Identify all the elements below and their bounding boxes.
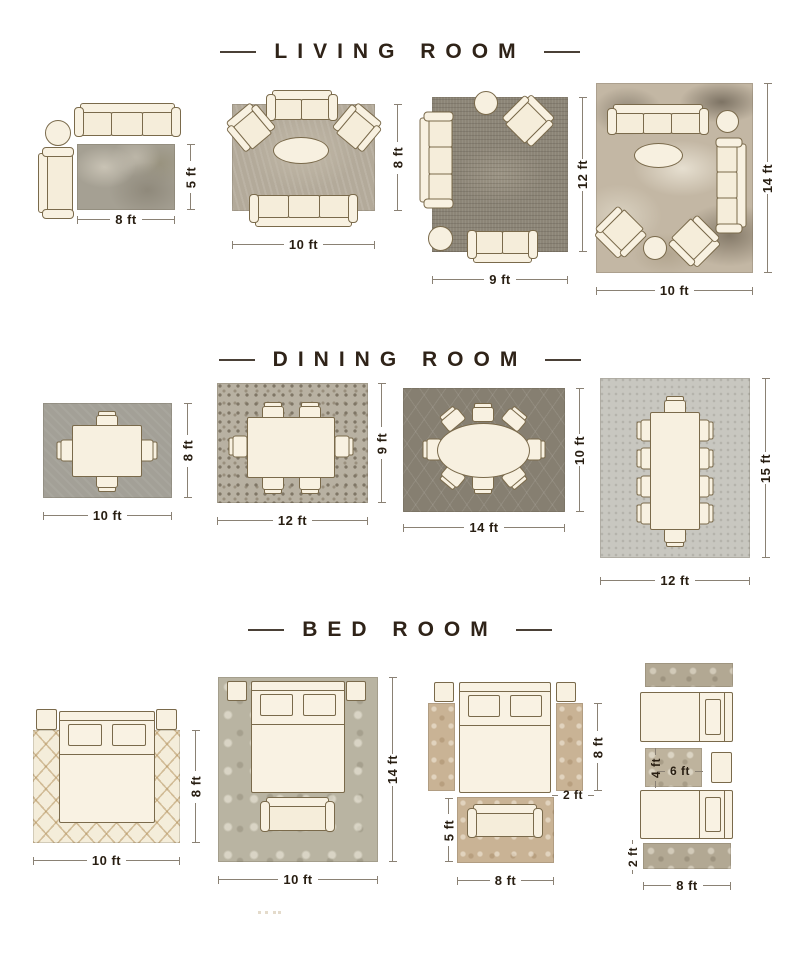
- sofa-3seat: [716, 138, 747, 234]
- dim-line: [323, 244, 374, 245]
- title-dash-left: [220, 51, 256, 53]
- dim-label: 8 ft: [490, 873, 522, 888]
- width-dimension: 14 ft: [403, 520, 565, 535]
- runner-width-dimension: 8 ft: [643, 878, 731, 893]
- nightstand: [434, 682, 454, 702]
- pillow: [705, 797, 721, 832]
- nightstand: [36, 709, 57, 730]
- dim-label: 5 ft: [183, 166, 198, 188]
- dim-line: [381, 384, 382, 427]
- cushion: [475, 231, 504, 254]
- dim-line: [597, 290, 655, 291]
- seats: [274, 99, 330, 120]
- width-dimension: 12 ft: [217, 513, 368, 528]
- seats: [717, 146, 738, 226]
- dim-line: [644, 885, 671, 886]
- arm: [325, 801, 335, 832]
- seats: [268, 806, 327, 831]
- dim-line: [44, 515, 88, 516]
- watermark-mark: [278, 911, 281, 914]
- height-dimension: 14 ft: [760, 83, 775, 273]
- foot-rug-width-dimension: 8 ft: [457, 873, 554, 888]
- dim-label: 2 ft: [626, 847, 640, 867]
- dim-label: 10 ft: [655, 283, 694, 298]
- dim-label: 8 ft: [110, 212, 142, 227]
- dim-line: [195, 731, 196, 771]
- dim-label: 8 ft: [390, 147, 405, 169]
- blanket-line: [699, 693, 700, 741]
- dim-line: [190, 145, 191, 161]
- dim-line: [397, 174, 398, 211]
- section-title-dining-room: DINING ROOM: [0, 348, 800, 372]
- blanket-line: [252, 724, 344, 725]
- title-dash-right: [544, 51, 580, 53]
- dim-label: 10 ft: [88, 508, 127, 523]
- pillow: [510, 695, 542, 717]
- cushion: [429, 147, 453, 175]
- runner-width-dimension: 2 ft: [552, 788, 594, 802]
- runner-height-dimension: 2 ft: [625, 840, 640, 874]
- twin-bed: [640, 790, 733, 839]
- dim-label: 10 ft: [572, 435, 587, 464]
- bedroom-layout-1: 10 ft 8 ft: [25, 675, 210, 870]
- title-dash-right: [516, 629, 552, 631]
- dim-line: [694, 290, 752, 291]
- dim-line: [448, 846, 449, 861]
- dim-line: [601, 580, 655, 581]
- watermark-mark: [258, 911, 261, 914]
- dim-line: [516, 279, 567, 280]
- dim-label: 12 ft: [575, 160, 590, 189]
- cushion: [267, 806, 327, 831]
- dim-tick: [553, 877, 554, 885]
- arm: [171, 107, 181, 137]
- rug-size-guide-infographic: LIVING ROOM 8 ft 5 ft: [0, 0, 800, 978]
- round-side-table: [716, 110, 739, 133]
- ottoman: [428, 226, 453, 251]
- cushion: [717, 171, 738, 199]
- dim-tick: [762, 557, 770, 558]
- nightstand: [156, 709, 177, 730]
- seats: [475, 231, 530, 254]
- dim-line: [657, 771, 665, 772]
- height-dimension: 8 ft: [180, 403, 195, 498]
- arm: [42, 147, 74, 157]
- arm: [424, 199, 454, 209]
- width-dimension: 12 ft: [600, 573, 750, 588]
- seats: [475, 813, 535, 837]
- dim-line: [703, 885, 730, 886]
- cushion: [319, 195, 351, 218]
- seats: [257, 195, 350, 218]
- dim-line: [142, 219, 174, 220]
- cushion: [717, 198, 738, 226]
- dim-label: 14 ft: [385, 755, 400, 784]
- width-dimension: 10 ft: [218, 872, 378, 887]
- dim-label: 6 ft: [665, 764, 695, 778]
- dim-line: [695, 771, 703, 772]
- cushion: [111, 112, 142, 136]
- dining-table: [247, 417, 335, 478]
- width-dimension: 10 ft: [596, 283, 753, 298]
- arm: [328, 94, 338, 121]
- living-layout-1: 8 ft 5 ft: [20, 85, 210, 245]
- dim-label: 15 ft: [758, 453, 773, 482]
- dim-line: [187, 467, 188, 498]
- height-dimension: 10 ft: [572, 388, 587, 512]
- headboard: [252, 682, 344, 691]
- dim-line: [381, 459, 382, 502]
- dim-line: [767, 84, 768, 162]
- dim-tick: [389, 861, 397, 862]
- chair-seat: [233, 436, 248, 458]
- arm: [533, 808, 543, 838]
- dim-line: [219, 879, 278, 880]
- dining-chair: [472, 403, 494, 422]
- cushion: [273, 99, 302, 120]
- arm: [467, 808, 477, 838]
- sofa-3seat: [420, 112, 454, 209]
- dim-line: [579, 389, 580, 434]
- dim-tick: [377, 876, 378, 884]
- nightstand: [711, 752, 732, 783]
- dim-line: [582, 98, 583, 159]
- headboard: [724, 693, 732, 741]
- cushion: [643, 113, 673, 134]
- bench: [467, 804, 543, 838]
- dim-line: [187, 404, 188, 435]
- section-title-text: BED ROOM: [302, 618, 498, 642]
- bench: [260, 797, 335, 832]
- dim-label: 9 ft: [374, 432, 389, 454]
- dim-line: [458, 880, 490, 881]
- dim-label: 10 ft: [278, 872, 317, 887]
- dim-label: 8 ft: [180, 440, 195, 462]
- dim-line: [765, 379, 766, 452]
- dining-chair: [664, 528, 686, 547]
- dim-label: 5 ft: [441, 819, 456, 841]
- cushion: [257, 195, 289, 218]
- chair-seat: [335, 436, 350, 458]
- dim-line: [597, 763, 598, 790]
- arm: [260, 801, 270, 832]
- height-dimension: 15 ft: [758, 378, 773, 558]
- loveseat: [266, 90, 338, 121]
- dim-tick: [171, 512, 172, 520]
- arm: [249, 194, 259, 223]
- loveseat: [467, 230, 538, 263]
- bed: [251, 681, 345, 793]
- round-side-table: [474, 91, 498, 115]
- runner-height-dimension: 8 ft: [590, 703, 605, 791]
- round-side-table: [45, 120, 71, 146]
- bedroom-layout-2: 10 ft 14 ft: [200, 655, 410, 890]
- title-dash-left: [219, 359, 255, 361]
- height-dimension: 8 ft: [188, 730, 203, 843]
- pillow: [705, 699, 721, 735]
- dim-label: 8 ft: [188, 776, 203, 798]
- dining-layout-2: 12 ft 9 ft: [210, 380, 395, 535]
- center-rug-width-dimension: 6 ft: [657, 764, 703, 778]
- seats: [82, 112, 173, 136]
- dim-tick: [579, 251, 587, 252]
- pillow: [468, 695, 500, 717]
- seats: [429, 120, 453, 201]
- seats: [47, 155, 73, 211]
- living-layout-4: 10 ft 14 ft: [585, 80, 795, 305]
- section-title-living-room: LIVING ROOM: [0, 40, 800, 64]
- dim-line: [318, 879, 377, 880]
- blanket-line: [60, 754, 154, 755]
- living-layout-3: 9 ft 12 ft: [400, 85, 595, 285]
- dining-chair: [335, 436, 354, 458]
- pillow: [112, 724, 146, 746]
- sofa-3seat: [607, 104, 709, 135]
- dining-layout-1: 10 ft 8 ft: [30, 395, 205, 530]
- dim-line: [218, 520, 273, 521]
- dim-line: [190, 193, 191, 209]
- dim-label: 12 ft: [273, 513, 312, 528]
- dim-tick: [564, 524, 565, 532]
- watermark-mark: [273, 911, 276, 914]
- arm: [716, 224, 743, 234]
- width-dimension: 10 ft: [43, 508, 172, 523]
- cushion: [503, 231, 532, 254]
- cushion: [47, 155, 73, 212]
- dim-label: 14 ft: [464, 520, 503, 535]
- dim-line: [765, 484, 766, 557]
- dim-line: [34, 860, 87, 861]
- dim-line: [579, 466, 580, 511]
- dim-tick: [378, 502, 386, 503]
- headboard: [60, 712, 154, 721]
- dining-chair: [229, 436, 248, 458]
- dim-line: [312, 520, 367, 521]
- cushion: [301, 99, 330, 120]
- sofa-3seat: [74, 103, 181, 137]
- headboard: [724, 791, 732, 838]
- height-dimension: 14 ft: [385, 677, 400, 862]
- title-dash-right: [545, 359, 581, 361]
- dining-layout-3: 14 ft 10 ft: [395, 380, 595, 540]
- dim-line: [521, 880, 553, 881]
- seats: [615, 113, 701, 134]
- arm: [699, 108, 709, 135]
- arm: [607, 108, 617, 135]
- runner-rug: [645, 663, 733, 687]
- arm: [528, 230, 538, 259]
- width-dimension: 10 ft: [232, 237, 375, 252]
- pillow: [303, 694, 336, 716]
- blanket-line: [699, 791, 700, 838]
- cushion: [429, 120, 453, 148]
- pillow: [260, 694, 293, 716]
- cushion: [81, 112, 112, 136]
- rug: [77, 144, 175, 210]
- section-title-bed-room: BED ROOM: [0, 618, 800, 642]
- dim-tick: [184, 497, 192, 498]
- dim-line: [392, 678, 393, 754]
- dim-label: 10 ft: [87, 853, 126, 868]
- width-dimension: 8 ft: [77, 212, 175, 227]
- dim-tick: [187, 209, 195, 210]
- dim-line: [655, 781, 656, 788]
- cushion: [717, 145, 738, 173]
- cushion: [474, 813, 535, 837]
- dining-table: [650, 412, 700, 530]
- bed: [459, 682, 551, 793]
- watermark-mark: [265, 911, 268, 914]
- dim-line: [195, 803, 196, 843]
- dining-table: [72, 425, 142, 477]
- height-dimension: 8 ft: [390, 104, 405, 211]
- title-dash-left: [248, 629, 284, 631]
- nightstand: [346, 681, 366, 701]
- dim-tick: [752, 287, 753, 295]
- dim-line: [404, 527, 464, 528]
- arm: [424, 112, 454, 122]
- dim-line: [695, 580, 749, 581]
- dim-line: [433, 279, 484, 280]
- cushion: [671, 113, 701, 134]
- dim-tick: [374, 241, 375, 249]
- dim-label: 10 ft: [284, 237, 323, 252]
- dim-tick: [730, 882, 731, 890]
- sofa-3seat: [249, 194, 358, 227]
- width-dimension: 10 ft: [33, 853, 180, 868]
- dim-tick: [764, 272, 772, 273]
- dim-line: [448, 799, 449, 814]
- dim-tick: [445, 861, 453, 862]
- bed: [59, 711, 155, 823]
- dim-tick: [576, 511, 584, 512]
- section-title-text: DINING ROOM: [273, 348, 528, 372]
- dim-tick: [174, 216, 175, 224]
- dim-line: [126, 860, 179, 861]
- arm: [348, 194, 358, 223]
- runner-rug: [643, 843, 731, 869]
- dim-tick: [179, 857, 180, 865]
- dim-line: [588, 795, 594, 796]
- dim-line: [655, 748, 656, 755]
- dim-label: 2 ft: [558, 788, 588, 802]
- width-dimension: 9 ft: [432, 272, 568, 287]
- dim-line: [233, 244, 284, 245]
- dim-line: [127, 515, 171, 516]
- height-dimension: 5 ft: [183, 144, 198, 210]
- dim-label: 12 ft: [655, 573, 694, 588]
- dining-layout-4: 12 ft 15 ft: [595, 370, 795, 590]
- dim-tick: [567, 276, 568, 284]
- chair-seat: [472, 407, 494, 422]
- oval-coffee-table: [273, 137, 329, 164]
- bedroom-layout-4: 4 ft 6 ft 2 ft 8 ft: [615, 650, 800, 895]
- height-dimension: 9 ft: [374, 383, 389, 503]
- dim-label: 9 ft: [484, 272, 516, 287]
- nightstand: [227, 681, 247, 701]
- arm: [42, 209, 74, 219]
- dim-line: [78, 219, 110, 220]
- headboard: [460, 683, 550, 692]
- dim-line: [597, 704, 598, 731]
- dim-label: 8 ft: [671, 878, 703, 893]
- oval-dining-table: [437, 423, 530, 478]
- dim-line: [767, 194, 768, 272]
- dim-tick: [394, 210, 402, 211]
- blanket-line: [460, 725, 550, 726]
- dim-tick: [749, 577, 750, 585]
- cushion: [429, 174, 453, 202]
- foot-rug-height-dimension: 5 ft: [441, 798, 456, 862]
- runner-rug: [556, 703, 583, 791]
- cushion: [288, 195, 320, 218]
- cushion: [614, 113, 644, 134]
- dim-tick: [367, 517, 368, 525]
- dim-line: [504, 527, 564, 528]
- dim-line: [392, 786, 393, 862]
- oval-coffee-table: [634, 143, 683, 168]
- twin-bed: [640, 692, 733, 742]
- dim-tick: [594, 790, 602, 791]
- arm: [716, 138, 743, 148]
- dim-label: 14 ft: [760, 163, 775, 192]
- nightstand: [556, 682, 576, 702]
- dim-line: [632, 870, 633, 874]
- chaise: [38, 147, 74, 219]
- cushion: [142, 112, 173, 136]
- dim-label: 8 ft: [590, 736, 605, 758]
- bedroom-layout-3: 8 ft 2 ft 5 ft 8 ft: [415, 670, 615, 885]
- runner-rug: [428, 703, 455, 791]
- arm: [467, 230, 477, 259]
- height-dimension: 12 ft: [575, 97, 590, 252]
- living-layout-2: 10 ft 8 ft: [210, 85, 405, 265]
- arm: [74, 107, 84, 137]
- ottoman: [643, 236, 667, 260]
- chair-seat: [664, 528, 686, 543]
- pillow: [68, 724, 102, 746]
- dim-tick: [192, 842, 200, 843]
- dim-line: [582, 191, 583, 252]
- dim-line: [397, 105, 398, 142]
- section-title-text: LIVING ROOM: [274, 40, 525, 64]
